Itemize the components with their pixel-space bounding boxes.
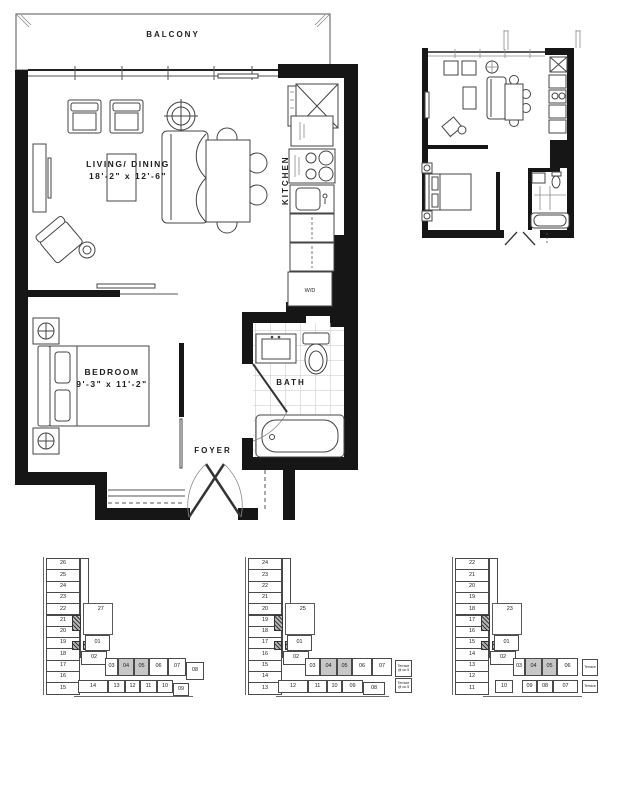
unit-cell: 05 [134,658,149,676]
unit-cell: 04 [118,658,134,676]
window-wall [28,66,278,80]
unit-cell: 11 [455,682,489,694]
living-dining: LIVING/ DINING 18'-2" x 12'-6" [33,99,267,294]
bedroom-dims: 9'-3" x 11'-2" [76,379,147,389]
floor-plate: 2625242322212019181716152701020304050607… [43,555,233,705]
unit-cell: 03 [305,658,320,676]
side-table [79,242,95,258]
toilet-icon [303,333,329,374]
floor-plate: 2221201918171615141312112301020304050610… [452,555,640,705]
unit-cell: 11 [140,680,157,693]
unit-cell: 03 [513,658,525,676]
bedroom-label: BEDROOM [85,367,140,377]
bath: BATH [253,323,344,457]
counter-cabinet [291,116,333,146]
washer-dryer-label: W/D [305,288,316,294]
unit-cell: 12 [278,680,308,693]
unit-cell: 06 [352,658,372,676]
terrace-note: Terrace @ un.5 [395,660,412,677]
terrace-note: Terrace [582,680,598,693]
unit-cell: 07 [553,680,578,693]
unit-cell: 09 [522,680,537,693]
unit-cell: 13 [108,680,125,693]
unit-label: 25 [300,606,306,612]
plate-outline [483,696,582,697]
sofa [162,131,208,223]
elevator-shaft [481,641,489,650]
plate-outline [452,557,453,695]
unit-cell: 01 [494,635,519,651]
plate-outline [245,557,246,695]
key-bedroom [422,163,471,221]
washer-dryer: W/D [288,272,332,306]
bedroom-closet [108,490,185,503]
key-living [425,60,531,137]
unit-cell: 14 [78,680,108,693]
unit-cell: 12 [125,680,140,693]
key-bath [531,172,569,228]
balcony-label: BALCONY [146,30,200,39]
tv-console [33,144,51,212]
unit-cell: 02 [81,651,107,665]
unit-cell: 04 [525,658,542,676]
sink-icon [290,185,334,213]
unit-label: 27 [98,606,104,612]
bath-label: BATH [276,378,306,387]
elevator-shaft [72,615,81,631]
bathtub-icon [256,415,344,457]
unit-cell: 09 [342,680,363,693]
elevator-shaft [274,641,282,650]
living-dining-label: LIVING/ DINING [86,159,170,169]
elevator-shaft [274,615,283,631]
unit-cell: 25 [285,603,315,635]
plate-outline [43,557,44,695]
balcony: BALCONY [16,14,330,70]
unit-cell: 06 [557,658,578,676]
bedroom: BEDROOM 9'-3" x 11'-2" [33,318,182,468]
lounge-chair [35,215,84,264]
unit-cell: 10 [327,680,342,693]
unit-cell: 13 [248,682,282,694]
unit-label: 23 [507,606,513,612]
unit-cell: 08 [186,662,204,680]
unit-cell: 11 [308,680,327,693]
unit-cell: 03 [105,658,118,676]
ceiling-light-icon [164,99,198,133]
terrace-note: Terrace @ un.5 [395,678,412,693]
cooktop-icon [289,149,335,183]
unit-cell: 23 [492,603,522,635]
key-window [428,49,545,58]
foyer-label: FOYER [194,446,232,455]
armchair [68,100,101,133]
pantry [290,243,334,271]
dining-table [206,140,250,222]
unit-cell: 04 [320,658,337,676]
armchair [110,100,143,133]
entry-door [188,464,242,517]
unit-cell: 08 [363,682,385,695]
unit-cell: 06 [149,658,168,676]
unit-cell: 27 [83,603,113,635]
vanity-sink-icon [256,334,296,363]
counter [290,214,334,242]
unit-cell: 09 [173,683,189,696]
unit-cell: 10 [157,680,173,693]
floor-plan-sheet: BALCONY [0,0,640,800]
sliding-door-leaf [97,284,155,288]
elevator-shaft [481,615,490,631]
nightstand [33,318,59,344]
main-floor-plan: BALCONY [15,14,358,520]
living-dining-dims: 18'-2" x 12'-6" [89,171,167,181]
unit-cell: 01 [287,635,312,651]
bedroom-door-leaf [180,419,182,468]
floor-plate: 2423222120191817161514132501020304050607… [245,555,435,705]
kitchen: KITCHEN [281,84,338,306]
balcony-door-leaf [218,74,258,78]
terrace-note: Terrace [582,659,598,676]
plate-outline [74,696,193,697]
unit-cell: 01 [85,635,110,651]
dining-set [206,128,267,233]
foyer: FOYER [108,446,265,517]
key-kitchen [549,57,567,133]
elevator-shaft [72,641,80,650]
unit-cell: 10 [495,680,513,693]
key-balcony-lines [504,30,580,50]
unit-cell: 08 [537,680,553,693]
unit-cell: 05 [337,658,352,676]
unit-cell: 07 [168,658,186,676]
plate-outline [276,696,389,697]
nightstand [33,428,59,454]
unit-cell: 05 [542,658,557,676]
key-plan [422,30,580,245]
unit-cell: 07 [372,658,392,676]
unit-cell: 15 [46,682,80,694]
